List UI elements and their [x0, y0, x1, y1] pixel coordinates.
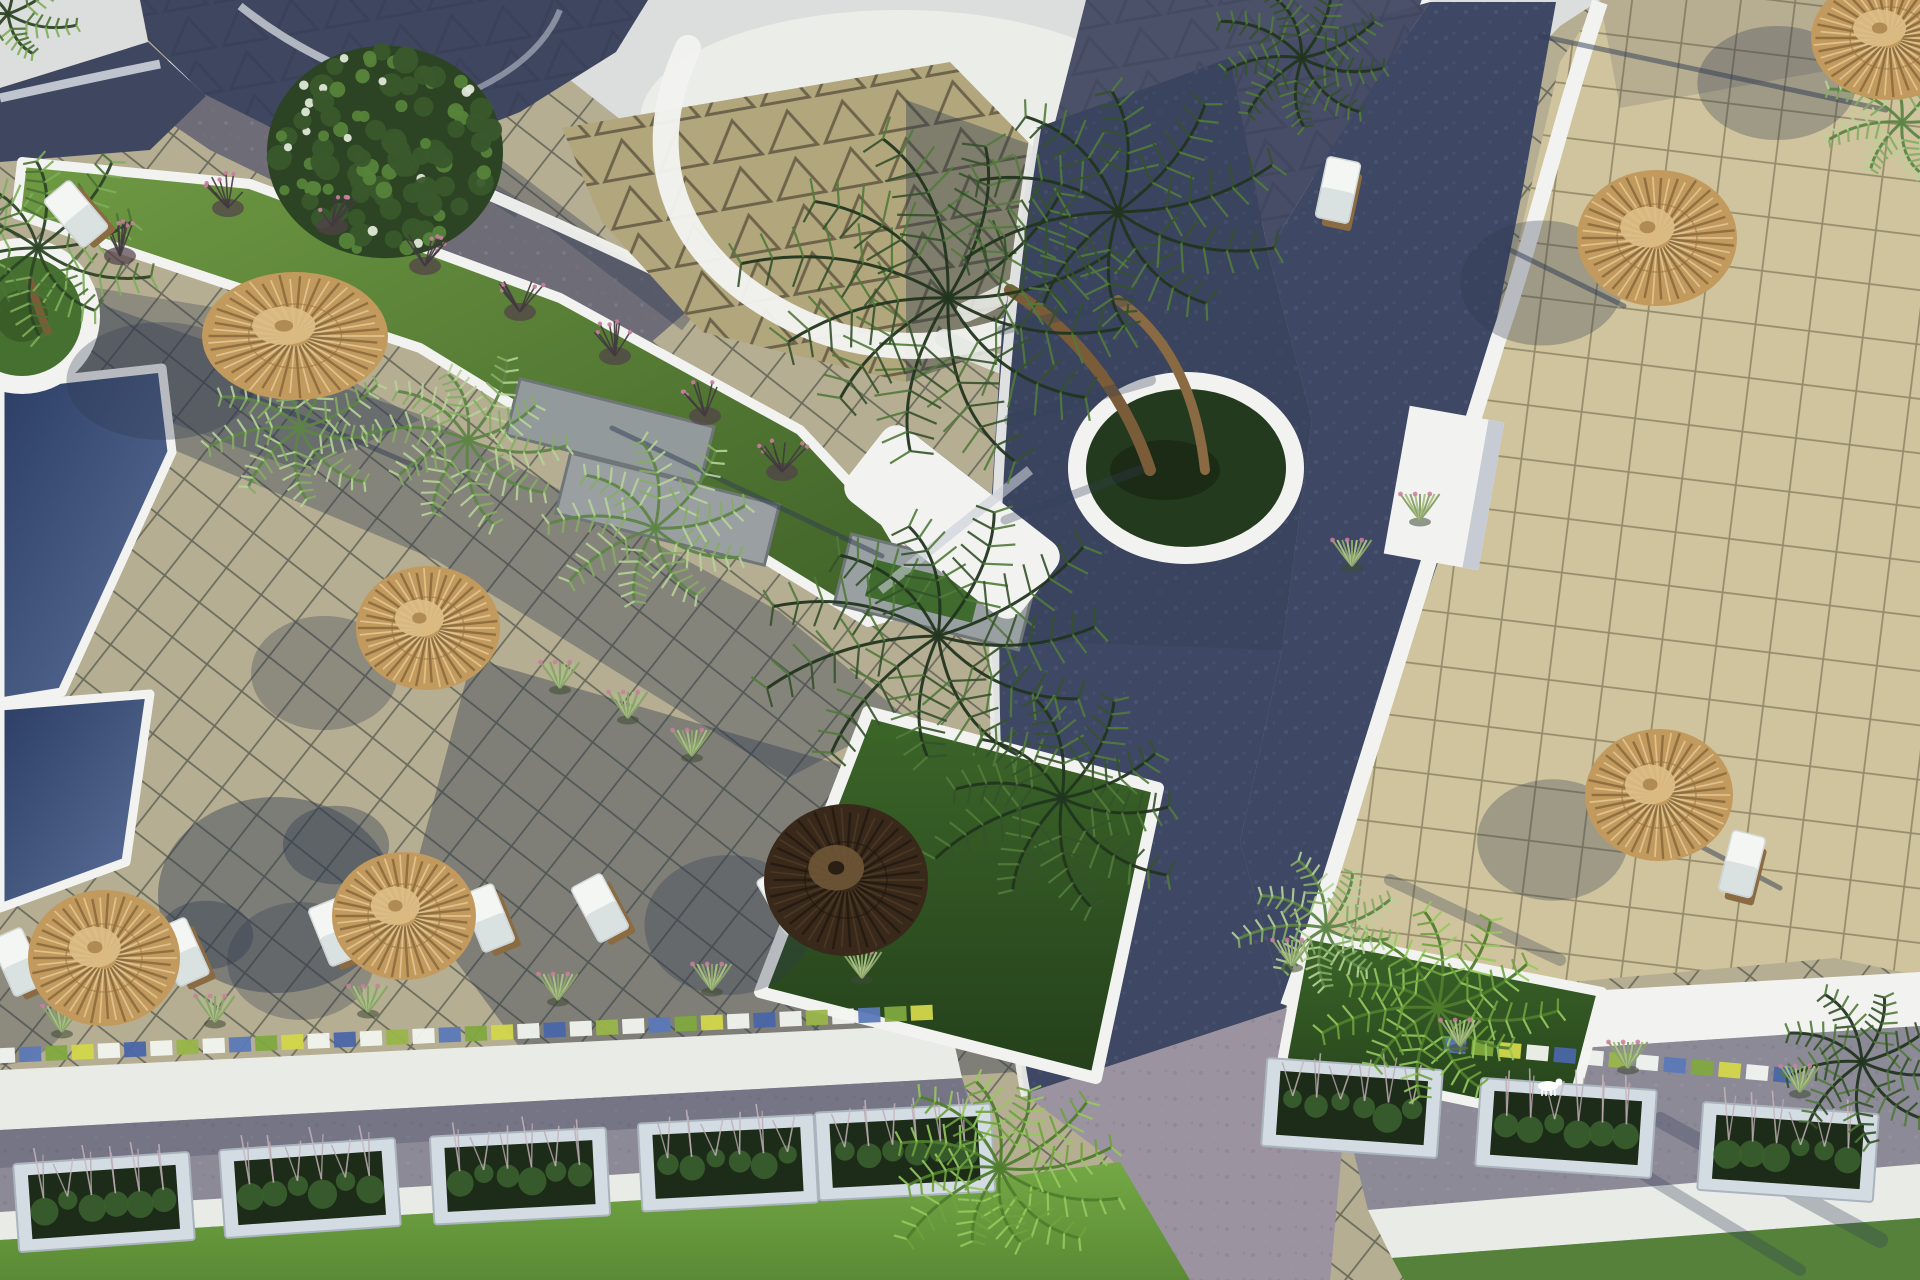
- thatch-umbrella: [1585, 729, 1733, 861]
- scene-canvas: [0, 0, 1920, 1280]
- thatch-umbrella: [202, 272, 388, 400]
- dark-thatch-umbrella: [764, 804, 928, 956]
- aerial-resort-render: [0, 0, 1920, 1280]
- thatch-umbrella: [28, 890, 180, 1026]
- thatch-umbrella: [332, 852, 476, 980]
- thatch-umbrella: [1577, 170, 1737, 306]
- thatch-umbrella: [356, 566, 500, 690]
